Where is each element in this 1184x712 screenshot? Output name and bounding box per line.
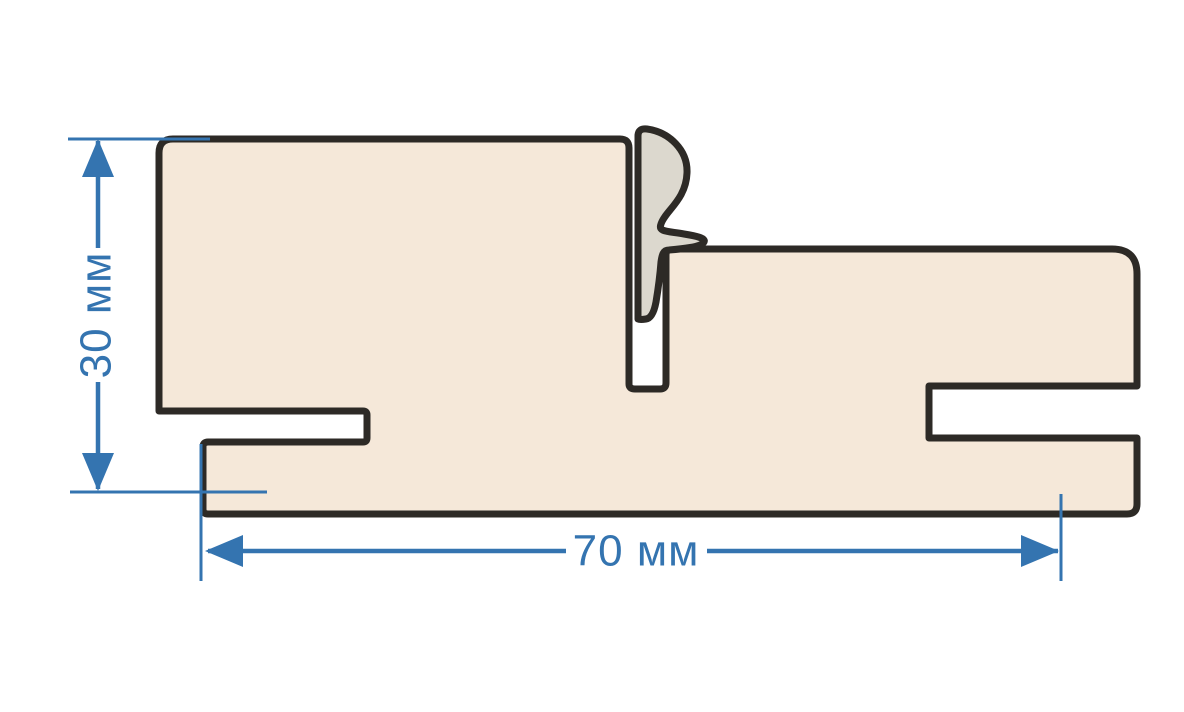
arrow-down-icon xyxy=(82,453,114,491)
diagram-canvas: 30 мм 70 мм xyxy=(0,0,1184,712)
arrow-up-icon xyxy=(82,139,114,177)
height-dimension-label: 30 мм xyxy=(72,252,121,379)
door-frame-cross-section-diagram: 30 мм 70 мм xyxy=(0,0,1184,712)
arrow-right-icon xyxy=(1021,535,1059,567)
width-dimension-label: 70 мм xyxy=(573,527,700,576)
arrow-left-icon xyxy=(205,535,243,567)
